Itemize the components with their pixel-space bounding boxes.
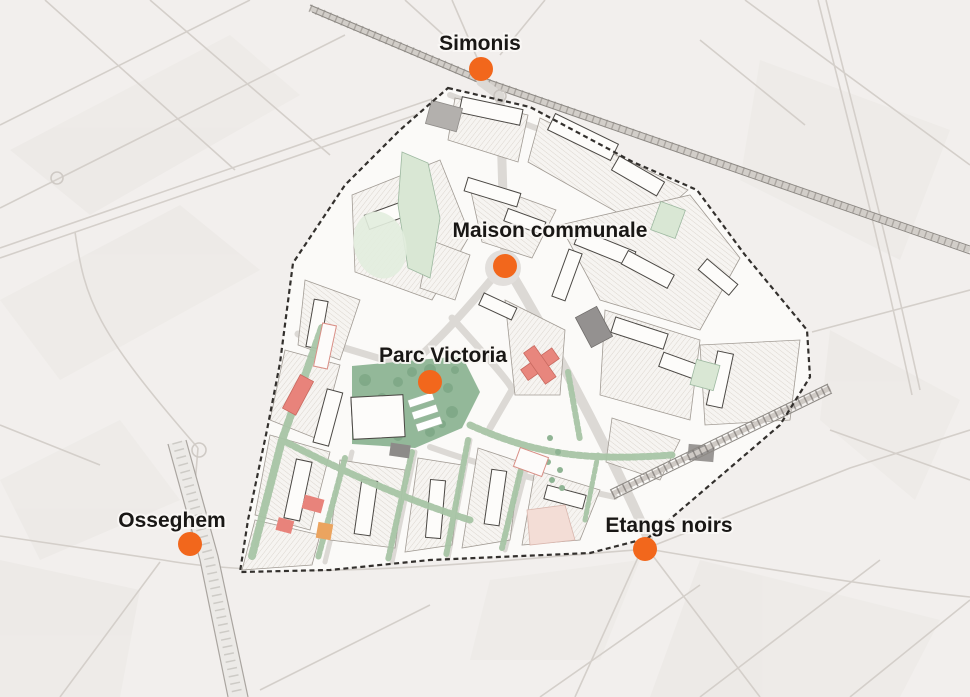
- station-dot-simonis[interactable]: [469, 57, 493, 81]
- station-label-maison-communale: Maison communale: [453, 219, 648, 242]
- map-canvas: SimonisMaison communaleParc VictoriaOsse…: [0, 0, 970, 697]
- station-label-etangs-noirs: Etangs noirs: [605, 514, 732, 537]
- station-dot-etangs-noirs[interactable]: [633, 537, 657, 561]
- station-label-osseghem: Osseghem: [118, 509, 225, 532]
- station-dot-maison-communale[interactable]: [493, 254, 517, 278]
- station-label-simonis: Simonis: [439, 32, 521, 55]
- station-dot-parc-victoria[interactable]: [418, 370, 442, 394]
- map-stage: SimonisMaison communaleParc VictoriaOsse…: [0, 0, 970, 697]
- park-housing-block: [351, 395, 405, 440]
- station-label-parc-victoria: Parc Victoria: [379, 344, 507, 367]
- gray-building: [389, 443, 411, 459]
- station-dot-osseghem[interactable]: [178, 532, 202, 556]
- orange-building: [316, 522, 334, 540]
